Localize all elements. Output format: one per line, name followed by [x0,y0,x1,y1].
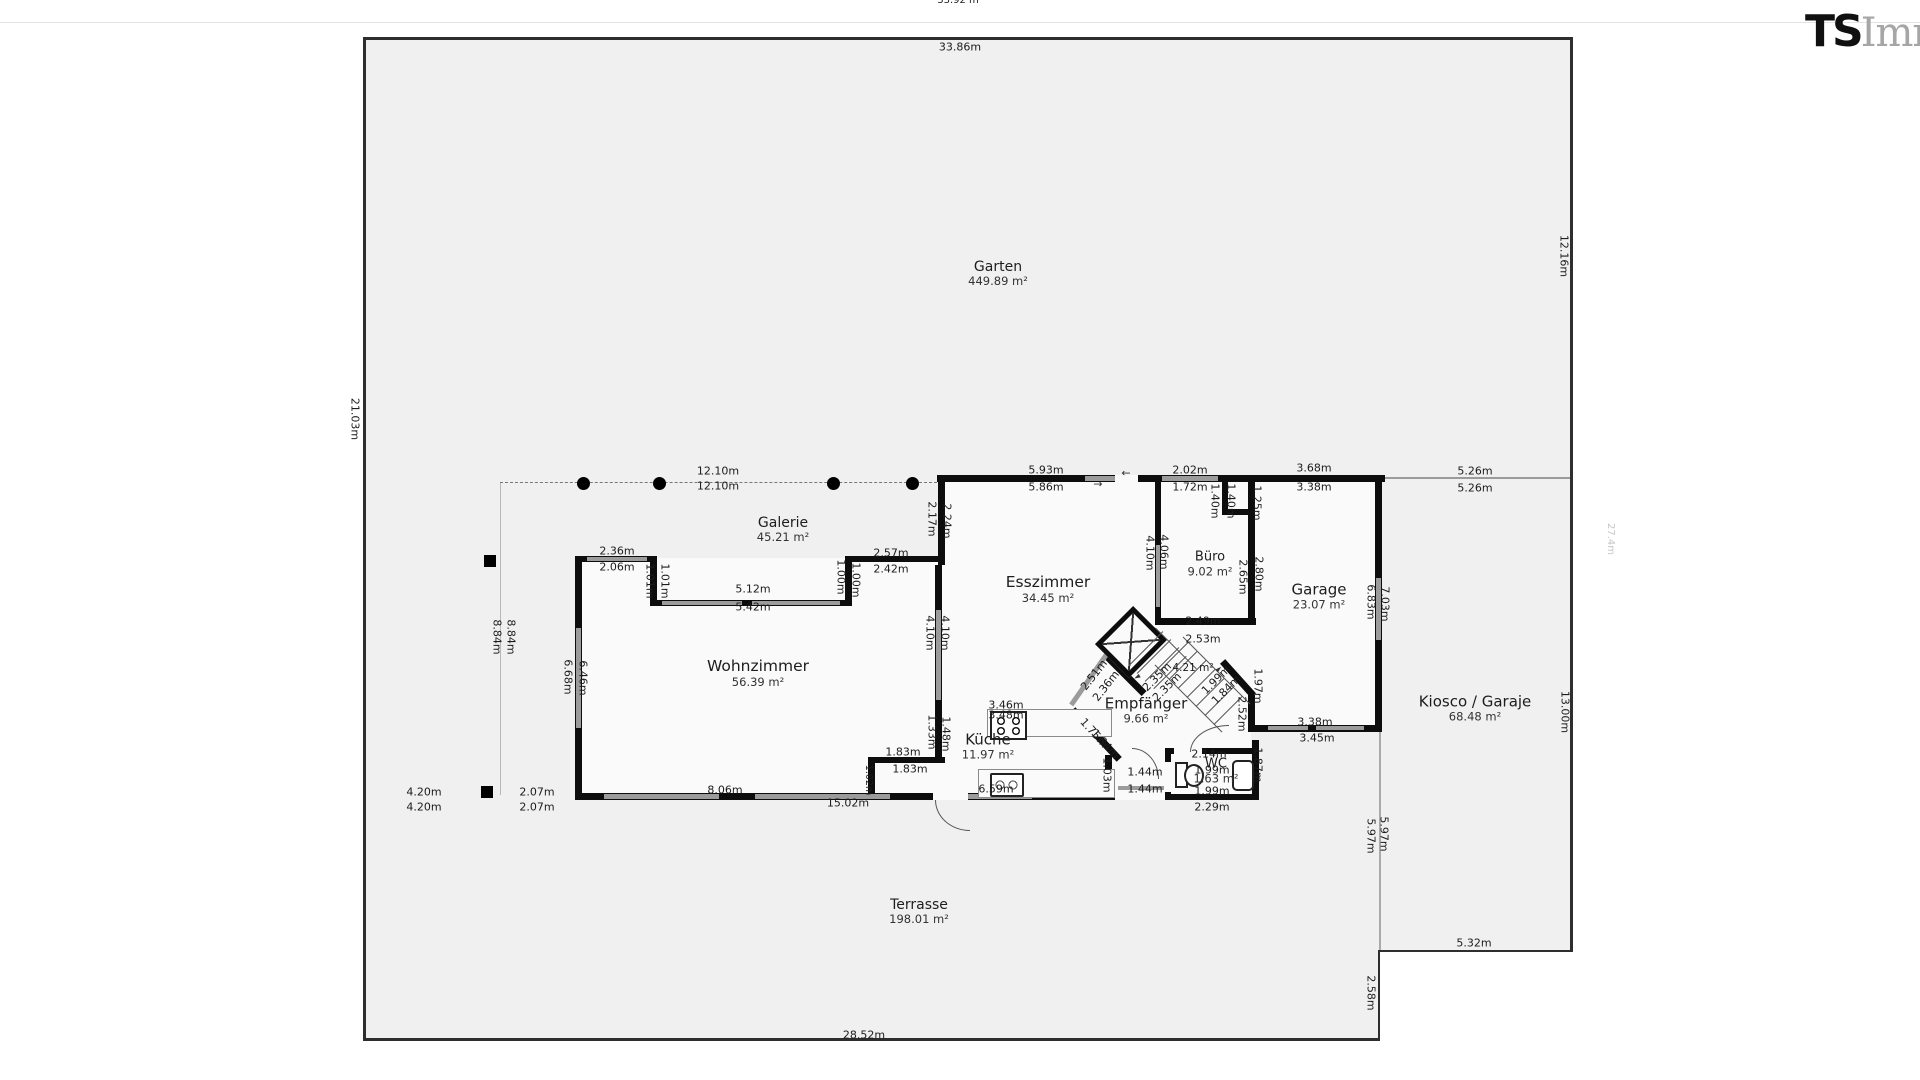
dim-label: 4.20m [406,802,441,813]
room-area: 198.01 m² [889,913,949,927]
room-label: Wohnzimmer56.39 m² [707,658,809,690]
dim-label: 3.38m [1296,482,1331,493]
area-fill [363,950,1380,1041]
window [604,794,719,799]
dim-label: 1.25m [1252,485,1263,520]
dim-label: 2.29m [1194,802,1229,813]
room-name: Garten [968,259,1028,275]
dim-label: 12.10m [697,466,739,477]
logo-ts-mark: TS [1805,6,1861,57]
dim-label: 2.07m [519,787,554,798]
property-border [1378,950,1380,1041]
room-label: Kiosco / Garaje68.48 m² [1419,693,1532,724]
dim-label: 1.44m [1127,767,1162,778]
dim-label: 1.44m [1127,784,1162,795]
property-border [1570,37,1573,952]
boundary-line [0,22,1920,23]
dim-label: 5.26m [1457,466,1492,477]
room-area: 449.89 m² [968,275,1028,289]
dim-label: 5.97m [1379,816,1390,851]
room-area: 68.48 m² [1419,711,1532,725]
dim-label: 7.03m [1380,586,1391,621]
room-area: 56.39 m² [707,676,809,690]
dim-label: 6.83m [1366,584,1377,619]
dim-label: 5.97m [1366,818,1377,853]
dim-label: 5.93m [1028,465,1063,476]
dim-label: 33.92 m [937,0,979,6]
dim-label: 8.84m [492,619,503,654]
room-name: Küche [962,731,1014,748]
dim-label: 1.00m [851,562,862,597]
column-dot [906,477,919,490]
room-area: 34.45 m² [1006,592,1091,606]
room-area: 23.07 m² [1292,599,1347,613]
room-label: Büro9.02 m² [1187,551,1232,580]
dim-label: 2.80m [1254,556,1265,591]
dim-label: 13.00m [1560,691,1571,733]
room-area: 11.97 m² [962,749,1014,763]
dim-label: 2.57m [873,548,908,559]
room-name: Galerie [757,515,809,531]
ts-immo-logo: TSImmo [1805,6,1920,57]
dim-label: 2.06m [599,562,634,573]
dim-label: 2.07m [519,802,554,813]
dim-label: 2.49m [1185,616,1220,627]
dim-label: 1.02m [863,765,873,795]
room-label: Garage23.07 m² [1292,581,1347,612]
dim-label: 1.87m [1253,747,1264,782]
room-label: Galerie45.21 m² [757,515,809,545]
dim-label: 1.00m [836,559,847,594]
dim-label: 2.24m [942,503,953,538]
dim-label: 6.68m [563,659,574,694]
dim-label: 27.4m [1605,523,1615,555]
dim-label: 4.10m [925,615,936,650]
dim-label: 1.72m [1172,482,1207,493]
dim-label: 3.45m [1299,733,1334,744]
dim-label: 2.17m [927,501,938,536]
dim-label: 2.65m [1238,559,1249,594]
room-label: WC1.63 m² [1193,758,1238,787]
dim-label: 1.83m [892,764,927,775]
dim-label: 6.59m [978,784,1013,795]
room-name: Empfänger [1105,695,1188,712]
dim-label: 1.33m [927,714,938,749]
dim-label: 12.10m [697,481,739,492]
room-area: 9.02 m² [1187,566,1232,580]
dim-label: 1.40m [1226,483,1237,518]
dim-label: 4.06m [1159,534,1170,569]
dim-label: 3.38m [1297,717,1332,728]
column-square [481,786,493,798]
room-name: Wohnzimmer [707,658,809,676]
column-dot [827,477,840,490]
dim-label: 8.84m [506,619,517,654]
property-border [363,37,366,1041]
dim-label: 5.42m [735,602,770,613]
dim-label: 4.10m [940,615,951,650]
logo-immo-text: Immo [1861,10,1920,56]
room-area: 45.21 m² [757,531,809,545]
dim-label: 12.16m [1559,235,1570,277]
dim-label: 1.03m [1102,757,1113,792]
room-label: Terrasse198.01 m² [889,897,949,927]
column-dot [577,477,590,490]
dim-label: 1.01m [645,563,656,598]
room-label: Garten449.89 m² [968,259,1028,289]
dim-label: 15.02m [827,798,869,809]
room-label: Esszimmer34.45 m² [1006,574,1091,606]
room-name: Büro [1187,551,1232,566]
dim-label: 4.10m [1145,535,1156,570]
dim-label: 4.21 m² [1172,663,1213,674]
room-area: 1.63 m² [1193,773,1238,787]
dim-label: 28.52m [843,1030,885,1041]
room-name: Terrasse [889,897,949,913]
dim-label: 2.36m [599,546,634,557]
dim-label: 21.03m [350,398,361,440]
dim-label: 4.20m [406,787,441,798]
door-opening [1165,762,1171,792]
dim-label: 1.99m [1194,786,1229,797]
dim-label: 2.53m [1185,634,1220,645]
dim-label: 1.40m [1210,483,1221,518]
dim-label: 5.12m [735,584,770,595]
room-name: WC [1193,758,1238,773]
dim-label: 1.48m [941,716,952,751]
room-area: 9.66 m² [1105,713,1188,727]
dim-label: 8.06m [707,785,742,796]
dim-label: 3.68m [1296,463,1331,474]
dim-label: 1.97m [1253,668,1264,703]
dim-label: 3.48m [988,710,1023,721]
dim-label: 6.46m [578,660,589,695]
direction-arrow-icon: ← [1121,468,1130,479]
window [662,601,742,605]
dim-label: 1.01m [660,563,671,598]
direction-arrow-icon: → [1093,479,1102,490]
dim-label: 2.02m [1172,465,1207,476]
dim-label: 5.86m [1028,482,1063,493]
dim-label: 1.83m [885,747,920,758]
room-name: Esszimmer [1006,574,1091,592]
property-border [1380,950,1572,952]
dim-label: 33.86m [939,42,981,53]
dim-label: 5.26m [1457,483,1492,494]
dim-label: 2.52m [1237,696,1248,731]
floorplan-canvas: 33.92 m33.86m12.10m12.10m5.93m5.86m2.02m… [0,0,1920,1080]
room-label: Küche11.97 m² [962,731,1014,762]
room-label: Empfänger9.66 m² [1105,695,1188,726]
dim-label: 2.42m [873,564,908,575]
dim-label: 5.32m [1456,938,1491,949]
dim-label: 2.58m [1366,975,1377,1010]
column-square [484,555,496,567]
door-opening [933,793,968,800]
room-name: Garage [1292,581,1347,598]
column-dot [653,477,666,490]
room-name: Kiosco / Garaje [1419,693,1532,710]
